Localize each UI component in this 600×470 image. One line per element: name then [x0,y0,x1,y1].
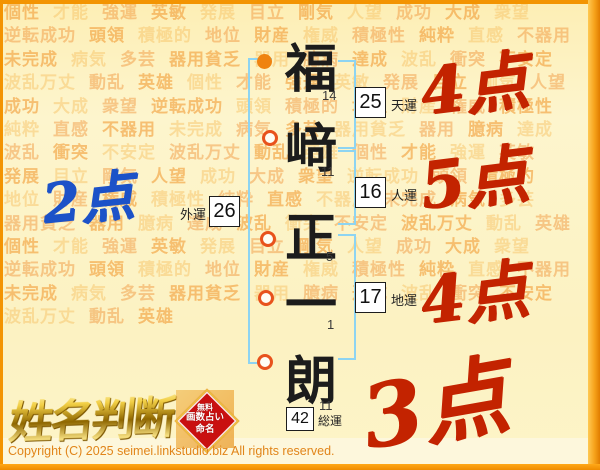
watermark-word: 動乱 [89,71,125,94]
watermark-word: 不器用 [517,24,571,47]
watermark-word: 発展 [383,71,419,94]
watermark-word: 衆望 [102,95,138,118]
watermark-word: 頭領 [89,258,125,281]
watermark-word: 積極性 [352,258,406,281]
watermark-word: 英雄 [535,212,571,235]
watermark-word: 純粋 [419,24,455,47]
stroke-count: 14 [322,88,336,103]
gai-un-label: 外運 [180,204,206,223]
watermark-word: 積極的 [138,24,192,47]
watermark-word: 成功 [396,235,432,258]
watermark-word: 人望 [151,165,187,188]
watermark-word: 剛気 [298,1,334,24]
watermark-word: 不器用 [102,118,156,141]
watermark-word: 逆転成功 [4,24,76,47]
watermark-word: 器用貧乏 [169,282,241,305]
watermark-word: 個性 [352,141,388,164]
watermark-word: 人望 [530,71,566,94]
bracket-ten-un [338,60,356,149]
sou-un-value-box: 42 [286,407,314,431]
watermark-word: 成功 [200,165,236,188]
watermark-word: 強運 [102,235,138,258]
seal-line-3: 命名 [195,424,214,435]
watermark-word: 発展 [4,165,40,188]
seal-line-2: 画数占い [186,412,224,423]
watermark-word: 未完成 [169,118,223,141]
bracket-full-name [248,58,272,364]
watermark-word: 未完成 [4,48,58,71]
watermark-word: 地位 [205,258,241,281]
watermark-word: 不安定 [102,141,156,164]
watermark-word: 動乱 [89,305,125,328]
watermark-word: 発展 [200,1,236,24]
site-logo[interactable]: 姓名判断 [6,381,177,451]
watermark-word: 英雄 [138,305,174,328]
watermark-word: 地位 [4,188,40,211]
stroke-count: 11 [321,164,335,179]
watermark-word: 純粋 [4,118,40,141]
watermark-word: 逆転成功 [151,95,223,118]
watermark-word: 病気 [71,48,107,71]
copyright-text: Copyright (C) 2025 seimei.linkstudio.biz… [8,444,335,458]
open-circle-icon [257,354,273,370]
bracket-jin-un [338,150,356,225]
watermark-word: 波乱万丈 [169,141,241,164]
frame-border-left [0,0,3,470]
watermark-word: 英敏 [151,235,187,258]
watermark-word: 積極性 [352,24,406,47]
open-circle-icon [258,290,274,306]
watermark-word: 多芸 [120,48,156,71]
gai-un-score: 2点 [39,167,136,230]
watermark-word: 目立 [249,1,285,24]
filled-circle-icon [257,54,272,69]
watermark-word: 衝突 [53,141,89,164]
jin-un-label: 人運 [391,185,417,204]
watermark-word: 臆病 [138,212,174,235]
free-naming-seal[interactable]: 無料 画数占い 命名 [176,390,234,448]
frame-border-right [588,0,600,470]
watermark-word: 未完成 [4,282,58,305]
gai-un-value-box: 26 [209,196,240,227]
frame-border-bottom [0,464,600,470]
watermark-word: 才能 [53,1,89,24]
watermark-word: 逆転成功 [4,258,76,281]
watermark-word: 英雄 [138,71,174,94]
watermark-word: 直感 [468,24,504,47]
watermark-word: 成功 [4,95,40,118]
watermark-word: 波乱万丈 [4,305,76,328]
watermark-word: 大成 [445,1,481,24]
watermark-word: 地位 [205,24,241,47]
frame-border-top [0,0,600,4]
watermark-word: 人望 [347,1,383,24]
chi-un-label: 地運 [391,290,417,309]
watermark-word: 大成 [445,235,481,258]
watermark-word: 器用貧乏 [169,48,241,71]
watermark-word: 波乱 [4,141,40,164]
watermark-word: 発展 [200,235,236,258]
sou-un-label: 総運 [318,412,342,429]
watermark-word: 英敏 [151,1,187,24]
watermark-word: 達成 [352,48,388,71]
sou-un-score: 3点 [356,352,515,462]
bracket-chi-un [338,234,356,360]
ten-un-value-box: 25 [355,87,386,118]
watermark-word: 波乱万丈 [4,71,76,94]
open-circle-icon [260,231,276,247]
watermark-word: 個性 [4,1,40,24]
watermark-word: 大成 [53,95,89,118]
watermark-word: 頭領 [89,24,125,47]
chi-un-value-box: 17 [355,282,386,313]
ten-un-score: 4点 [417,49,533,126]
stroke-count: 1 [327,317,334,332]
chi-un-score: 4点 [417,258,533,335]
watermark-word: 強運 [102,1,138,24]
watermark-word: 成功 [396,1,432,24]
watermark-word: 直感 [53,118,89,141]
watermark-word: 衆望 [494,1,530,24]
watermark-word: 病気 [71,282,107,305]
ten-un-label: 天運 [391,95,417,114]
jin-un-score: 5点 [417,143,533,220]
watermark-word: 積極的 [138,258,192,281]
watermark-word: 才能 [53,235,89,258]
watermark-word: 多芸 [120,282,156,305]
stroke-count: 11 [319,398,333,413]
stroke-count: 5 [326,249,333,264]
seal-text: 無料 画数占い 命名 [176,390,234,448]
seal-line-1: 無料 [197,403,213,413]
jin-un-value-box: 16 [355,177,386,208]
open-circle-icon [262,130,278,146]
watermark-word: 個性 [4,235,40,258]
watermark-word: 個性 [187,71,223,94]
seimei-handan-result-page: 個性才能強運英敏発展目立剛気人望成功大成衆望逆転成功頭領積極的地位財産権威積極性… [0,0,600,470]
